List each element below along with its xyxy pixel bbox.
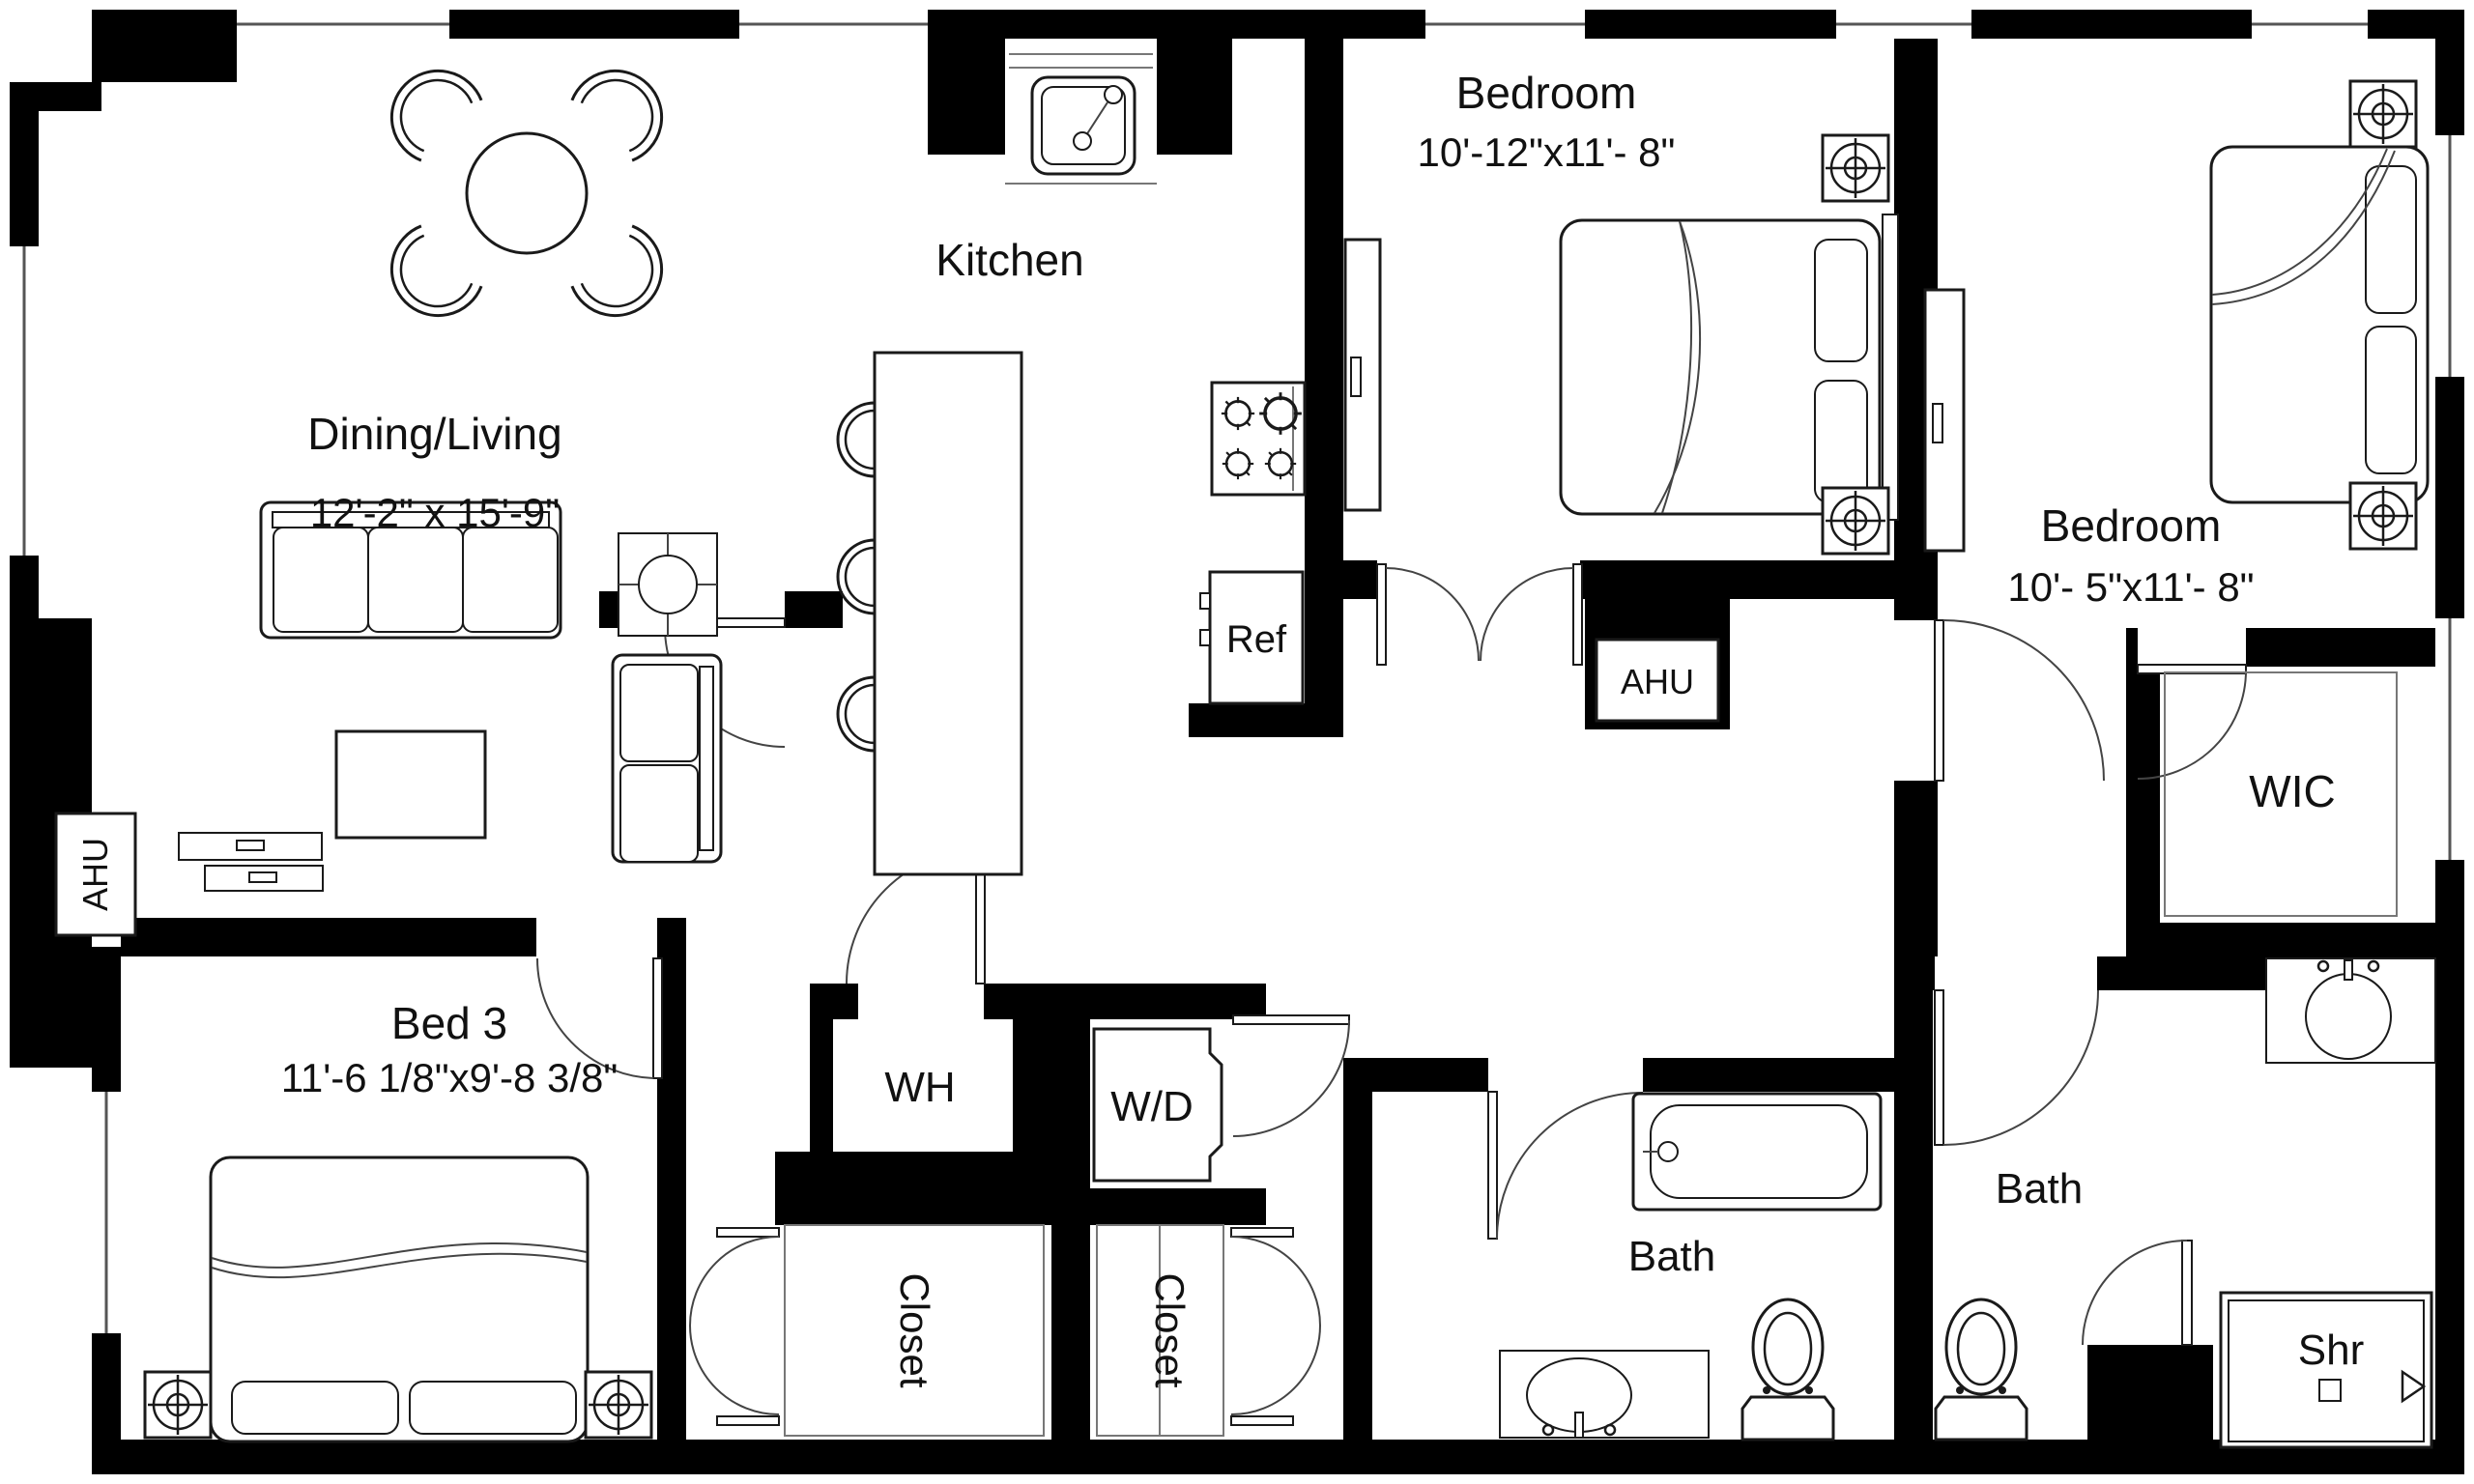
window-icon <box>739 10 928 39</box>
room-label: Bath <box>1996 1165 2084 1213</box>
door-swing-icon <box>1935 620 2104 781</box>
bed-icon <box>211 1157 588 1441</box>
room-label: Bed 3 <box>391 998 507 1048</box>
toilet-icon <box>1742 1299 1833 1440</box>
dining-chair-icon <box>569 223 680 334</box>
bedroom-top: Bedroom 10'-12"x11'- 8" <box>1345 68 1898 554</box>
door-swing-icon <box>1233 1015 1349 1136</box>
appliance-label: W/D <box>1110 1083 1194 1130</box>
dining-chair-icon <box>373 52 484 163</box>
room-dimensions: 10'-12"x11'- 8" <box>1418 129 1676 175</box>
door-swing-icon <box>1481 564 1582 665</box>
ceiling-fixture-icon <box>586 1372 651 1438</box>
bathtub-icon <box>1633 1094 1881 1210</box>
room-label: Kitchen <box>935 235 1083 285</box>
window-icon <box>92 1092 121 1333</box>
window-icon <box>1425 10 1585 39</box>
toilet-icon <box>1936 1299 2027 1440</box>
bedroom-right: Bedroom 10'- 5"x11'- 8" <box>1925 81 2428 610</box>
dining-table-icon <box>467 133 587 253</box>
window-icon <box>10 246 39 556</box>
shower: Shr <box>2221 1293 2431 1447</box>
closet-left: Closet <box>785 1225 1044 1436</box>
dining-living-room: Dining/Living 12'-2" x 15'-9" <box>179 52 721 891</box>
window-icon <box>2435 618 2464 860</box>
appliance-label: Ref <box>1226 618 1287 661</box>
equipment-label: AHU <box>75 838 115 911</box>
room-label: Closet <box>1147 1272 1193 1387</box>
room-label: Bath <box>1628 1233 1716 1280</box>
door-swing-icon <box>1935 990 2098 1145</box>
room-label: Dining/Living <box>307 409 561 459</box>
lamp-icon <box>639 556 697 614</box>
room-dimensions: 11'-6 1/8"x9'-8 3/8" <box>281 1055 618 1100</box>
bathroom-sink-icon <box>2266 958 2435 1063</box>
window-icon <box>2435 135 2464 377</box>
ceiling-fixture-icon <box>1823 488 1888 554</box>
bathroom-sink-icon <box>1500 1351 1709 1438</box>
room-label: Shr <box>2298 1327 2364 1374</box>
dresser-icon <box>1345 240 1380 510</box>
closet-right: Closet <box>1097 1225 1223 1436</box>
door-swing-icon <box>1377 564 1479 665</box>
room-label: WH <box>884 1064 955 1111</box>
ceiling-fixture-icon <box>2350 483 2416 549</box>
floorplan-drawing: Dining/Living 12'-2" x 15'-9" <box>0 0 2474 1484</box>
bifold-door-icon <box>690 1228 779 1425</box>
equipment-label: AHU <box>1621 662 1694 701</box>
bar-stool-icon <box>838 677 875 751</box>
dresser-icon <box>1925 290 1964 551</box>
ceiling-fixture-icon <box>1823 135 1888 201</box>
refrigerator-icon: Ref <box>1200 572 1303 703</box>
ahu-hall: AHU <box>1597 640 1718 721</box>
media-console-icon <box>179 833 323 891</box>
coffee-table-icon <box>336 731 485 838</box>
room-label: WIC <box>2249 766 2335 816</box>
window-icon <box>1836 10 1971 39</box>
kitchen-island-icon <box>875 353 1021 874</box>
stove-icon <box>1212 383 1305 495</box>
room-dimensions: 10'- 5"x11'- 8" <box>2007 564 2254 610</box>
bedroom-three: Bed 3 11'-6 1/8"x9'-8 3/8" <box>145 998 651 1441</box>
washer-dryer-icon: W/D <box>1094 1029 1222 1181</box>
armchair-icon <box>613 655 721 862</box>
ceiling-fixture-icon <box>2350 81 2416 147</box>
room-label: Closet <box>892 1272 937 1387</box>
door-swing-icon <box>1488 1092 1643 1239</box>
bed-icon <box>1561 214 1898 520</box>
walk-in-closet: WIC <box>2165 672 2397 916</box>
door-swing-icon <box>2083 1241 2192 1345</box>
dining-chair-icon <box>569 52 680 163</box>
dining-chair-icon <box>373 223 484 334</box>
bath-left: Bath <box>1500 1094 1881 1440</box>
room-dimensions: 12'-2" x 15'-9" <box>310 490 560 535</box>
bifold-door-icon <box>1231 1228 1320 1425</box>
bar-stool-icon <box>838 403 875 476</box>
kitchen: Ref Kitchen <box>838 54 1305 874</box>
room-label: Bedroom <box>2041 500 2222 551</box>
floorplan-canvas: Dining/Living 12'-2" x 15'-9" <box>0 0 2474 1484</box>
window-icon <box>2252 10 2368 39</box>
side-table-icon <box>618 533 717 636</box>
bar-stool-icon <box>838 540 875 614</box>
doors <box>537 564 2246 1425</box>
bed-icon <box>2211 147 2428 502</box>
ceiling-fixture-icon <box>145 1372 211 1438</box>
room-label: Bedroom <box>1456 68 1637 118</box>
window-icon <box>237 10 449 39</box>
ahu-left: AHU <box>56 813 135 935</box>
kitchen-sink-icon <box>1005 54 1157 184</box>
